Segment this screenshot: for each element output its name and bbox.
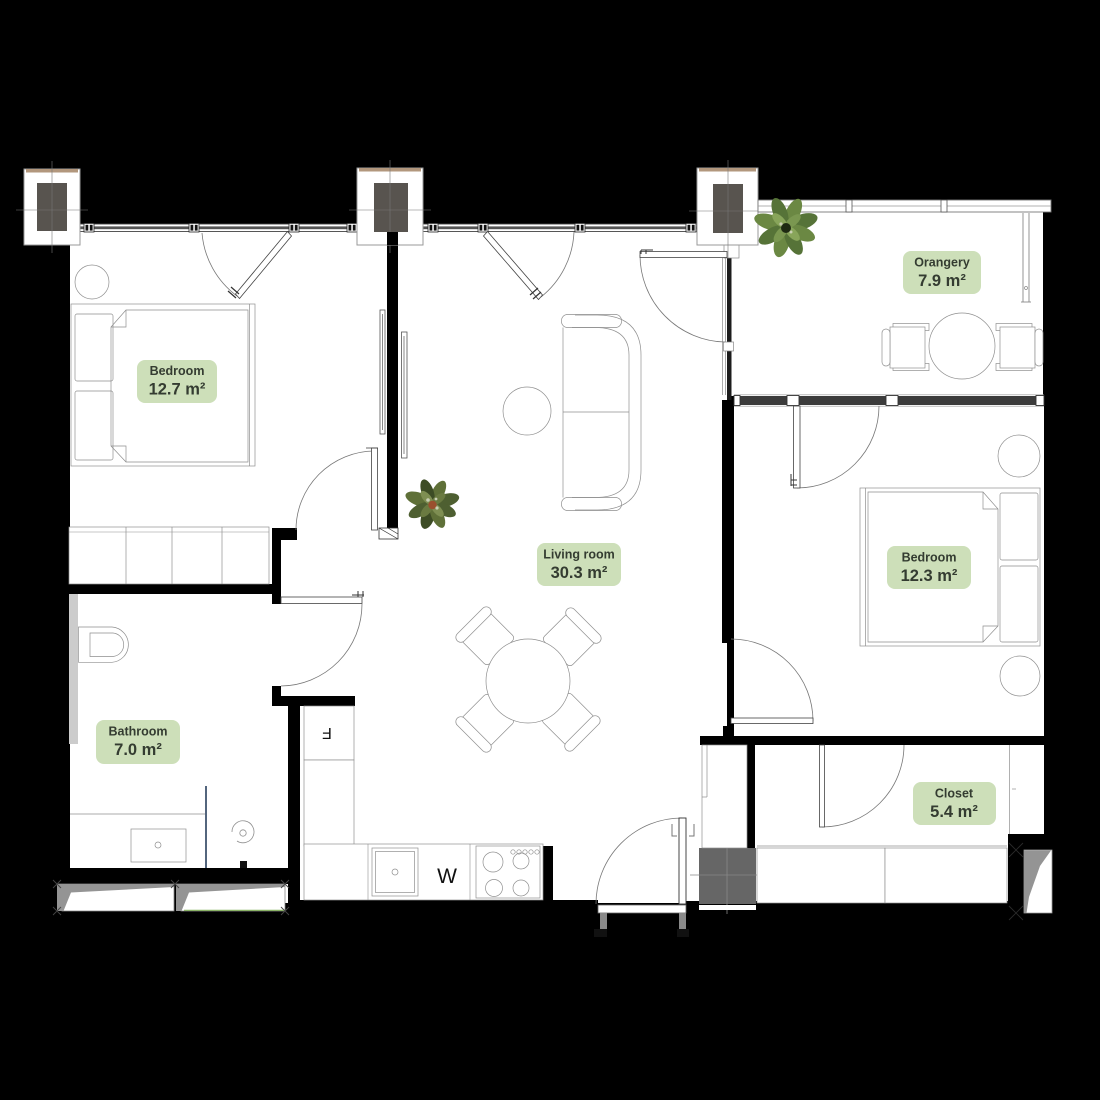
svg-text:Living room: Living room xyxy=(543,548,615,562)
svg-text:7.9 m²: 7.9 m² xyxy=(918,272,966,290)
svg-text:Bathroom: Bathroom xyxy=(108,725,167,739)
svg-text:5.4 m²: 5.4 m² xyxy=(930,803,978,821)
svg-text:12.7 m²: 12.7 m² xyxy=(149,381,206,399)
svg-text:Closet: Closet xyxy=(935,787,974,801)
svg-text:Bedroom: Bedroom xyxy=(150,364,205,378)
svg-text:Orangery: Orangery xyxy=(914,256,970,270)
svg-text:Bedroom: Bedroom xyxy=(902,551,957,565)
svg-text:12.3 m²: 12.3 m² xyxy=(901,567,958,585)
svg-text:F: F xyxy=(322,724,332,741)
svg-text:W: W xyxy=(437,865,457,888)
svg-text:30.3 m²: 30.3 m² xyxy=(551,564,608,582)
svg-text:7.0 m²: 7.0 m² xyxy=(114,741,162,759)
